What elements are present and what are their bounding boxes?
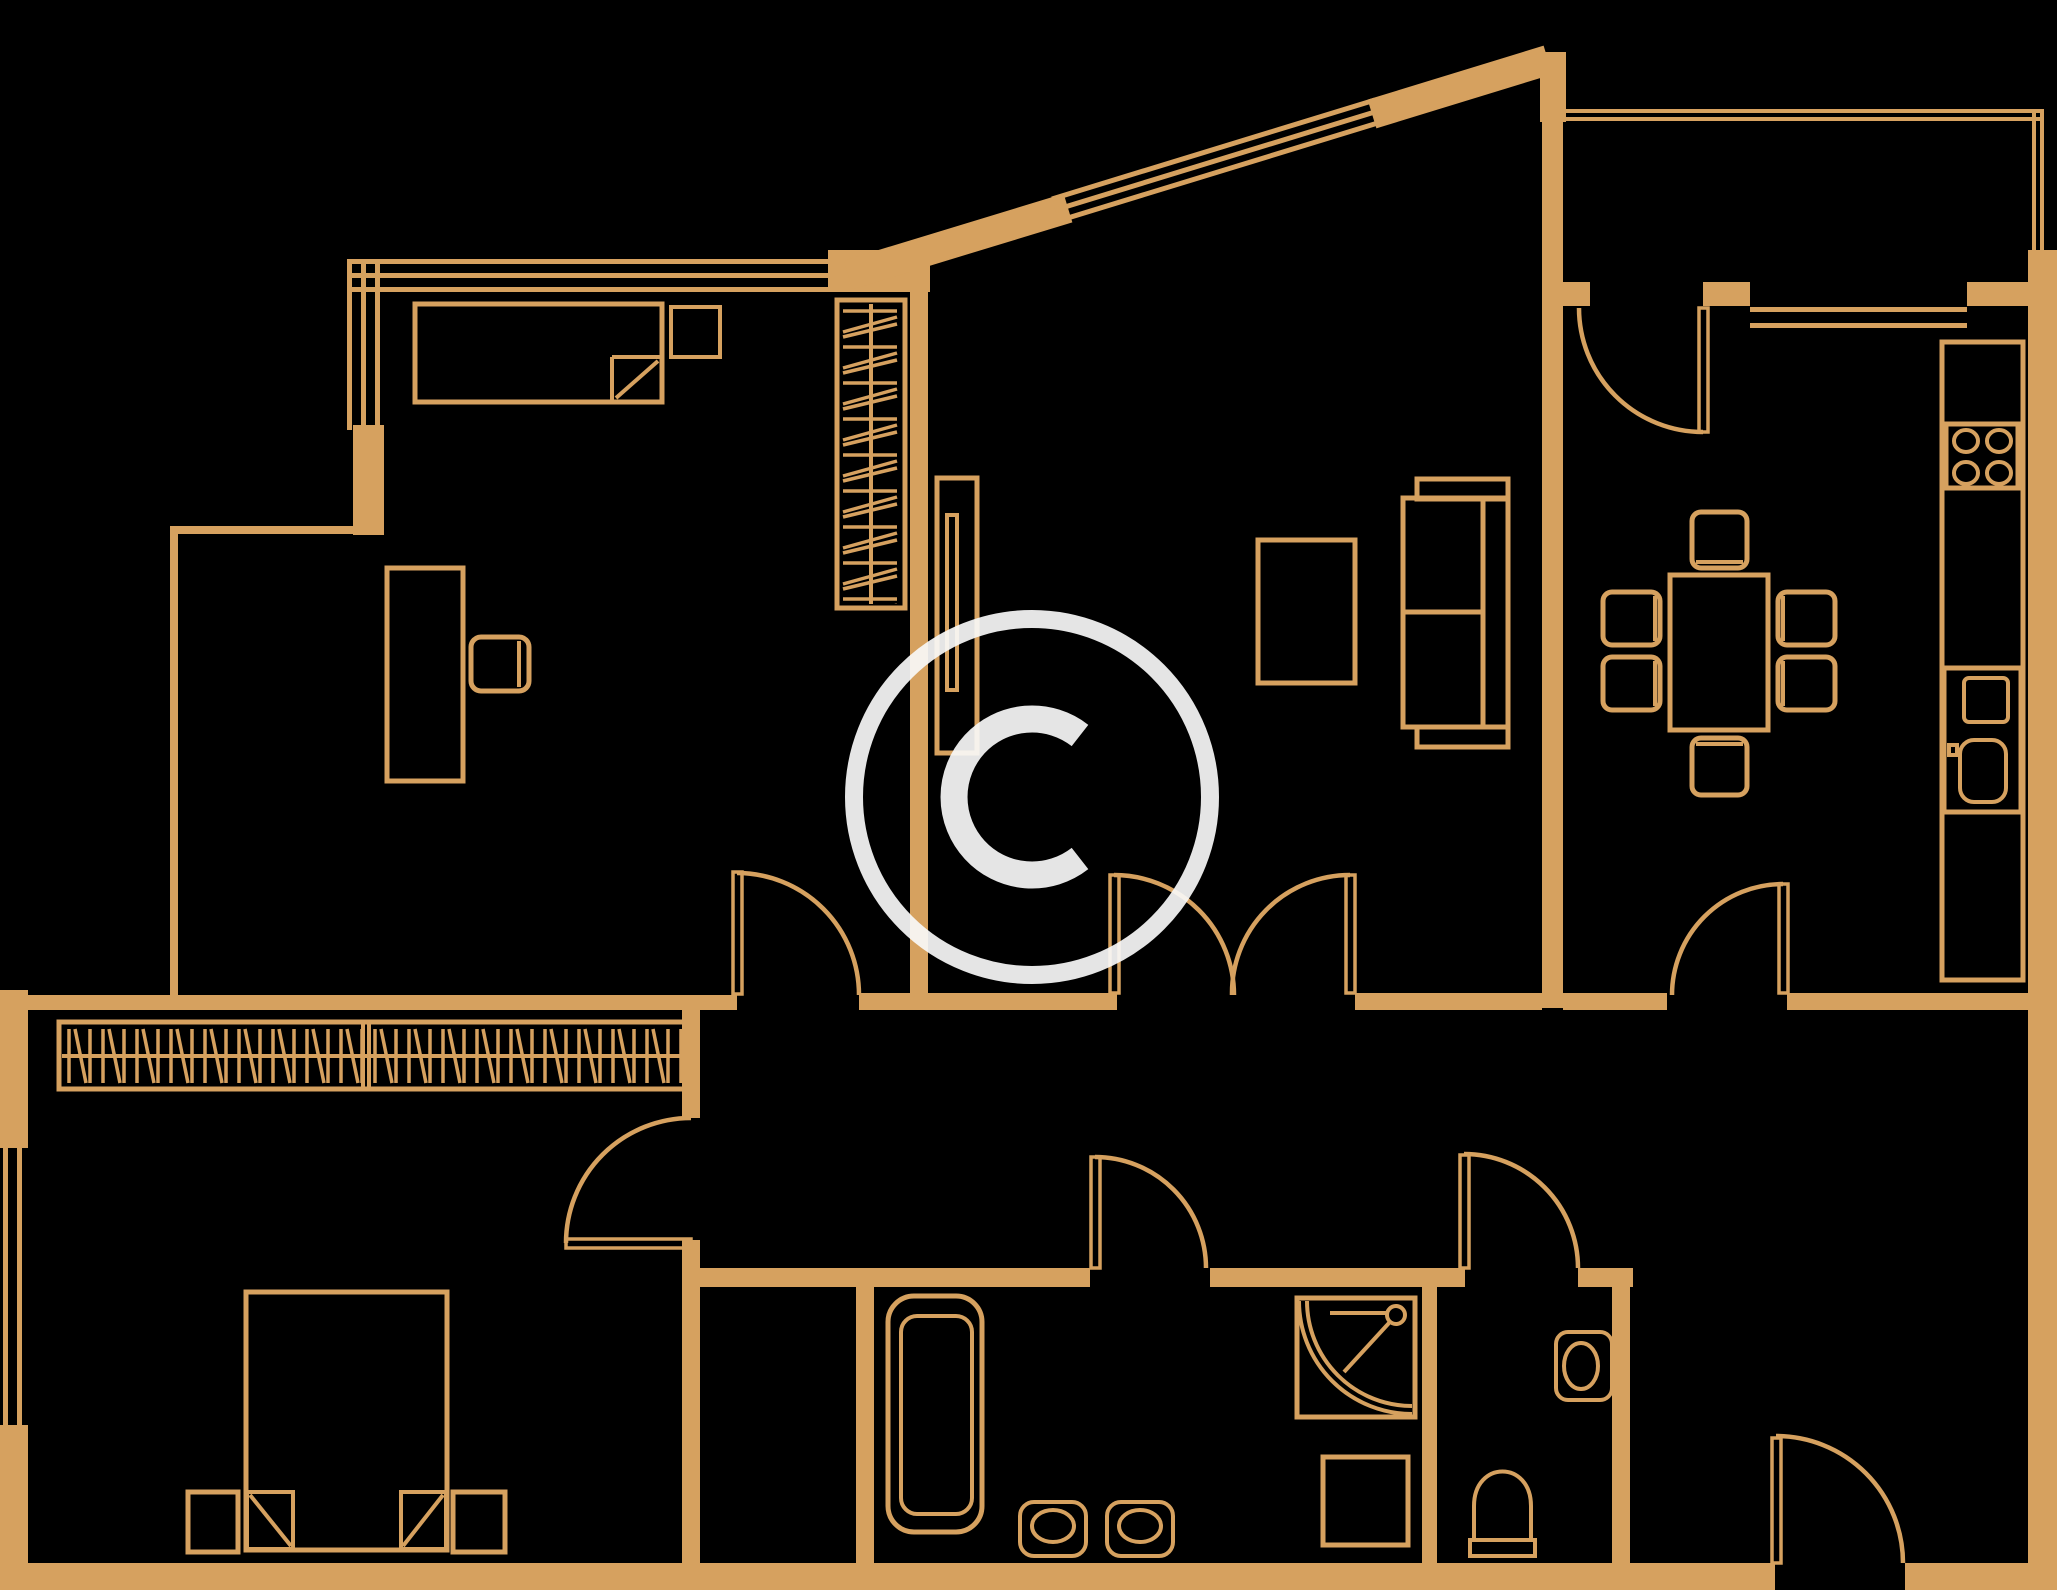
hatched-wardrobe bbox=[837, 300, 905, 608]
door-swing-arc bbox=[1095, 1157, 1206, 1268]
walls bbox=[0, 52, 2057, 1590]
kitchen-window bbox=[1750, 307, 1967, 328]
bathroom-door bbox=[1091, 1157, 1206, 1268]
door-leaf bbox=[1346, 875, 1355, 993]
bathroom-furniture bbox=[888, 1296, 1415, 1556]
diagonal-facade-window bbox=[1052, 100, 1381, 221]
door-swing-arc bbox=[1579, 308, 1703, 432]
chair-left-2 bbox=[1603, 657, 1660, 710]
sliding-panel bbox=[937, 478, 977, 753]
hallway-top-wall bbox=[22, 993, 2028, 1010]
wall-shower-wc-divider bbox=[1422, 1268, 1437, 1563]
diagonal-facade-wall bbox=[848, 52, 1566, 275]
washbasin-2 bbox=[1107, 1502, 1173, 1556]
bedroom-2-door bbox=[566, 1118, 691, 1248]
wall-washbasin bbox=[1556, 1332, 1612, 1400]
chair-top bbox=[1692, 512, 1747, 568]
entrance-door bbox=[1772, 1436, 1903, 1563]
tv-sideboard bbox=[1258, 540, 1355, 683]
pillow bbox=[671, 307, 720, 357]
door-swing-arc bbox=[1464, 1154, 1578, 1268]
bathroom-wc-top-wall bbox=[682, 1268, 1633, 1287]
chair-bottom bbox=[1692, 738, 1747, 795]
bedroom-2-window bbox=[3, 1148, 22, 1425]
door-leaf bbox=[733, 872, 742, 994]
bedroom-1-left-window bbox=[347, 259, 384, 535]
double-bed bbox=[246, 1292, 447, 1550]
floor-plan-canvas bbox=[0, 0, 2057, 1590]
living-room-furniture bbox=[1258, 479, 1508, 747]
doors bbox=[566, 308, 1903, 1563]
door-swing-arc bbox=[566, 1118, 691, 1243]
shower-head bbox=[1387, 1306, 1405, 1324]
door-leaf bbox=[1460, 1155, 1469, 1268]
shower-arm bbox=[1344, 1323, 1389, 1372]
wall-niche-left bbox=[170, 526, 178, 996]
wall-center bbox=[910, 265, 928, 1010]
bedroom-2-furniture bbox=[59, 1022, 685, 1552]
dining-table bbox=[1670, 575, 1768, 730]
sofa bbox=[1403, 479, 1508, 747]
wall-left-upper bbox=[353, 425, 384, 535]
door-swing-arc bbox=[1672, 884, 1783, 995]
washing-machine bbox=[1323, 1457, 1408, 1545]
single-bed bbox=[415, 304, 720, 402]
sink-basin bbox=[1960, 740, 2006, 802]
washbasin-1 bbox=[1020, 1502, 1086, 1556]
bathroom-left-wall bbox=[856, 1268, 874, 1563]
wc-right-wall bbox=[1612, 1268, 1630, 1563]
kitchen-hall-door bbox=[1672, 884, 1788, 995]
kitchen-sink-cabinet bbox=[1944, 668, 2021, 812]
faucet bbox=[1949, 745, 1957, 755]
wall-outer-bottom-right bbox=[1905, 1563, 2057, 1590]
loggia-glazing bbox=[1560, 109, 2044, 256]
wall-outer-left bbox=[0, 990, 28, 1590]
bathtub bbox=[888, 1296, 982, 1532]
door-leaf bbox=[1091, 1157, 1100, 1268]
wc-door bbox=[1460, 1154, 1578, 1268]
bedroom-1-top-window bbox=[347, 259, 848, 292]
pillow-right bbox=[401, 1492, 446, 1549]
pillow-left bbox=[247, 1492, 293, 1549]
desk bbox=[387, 568, 463, 781]
copyright-watermark bbox=[854, 619, 1210, 975]
wall-kitchen-divider bbox=[1542, 64, 1563, 1008]
sofa-armrest-bottom bbox=[1417, 727, 1508, 747]
chair-right-2 bbox=[1778, 657, 1835, 710]
floor-plan bbox=[0, 0, 2057, 1590]
door-swing-arc bbox=[1776, 1436, 1903, 1563]
kitchen-top-wall bbox=[1548, 282, 2028, 328]
door-leaf bbox=[1699, 308, 1708, 432]
door-leaf bbox=[1110, 875, 1119, 993]
door-swing-arc bbox=[1232, 875, 1350, 995]
kitchen-furniture bbox=[1603, 342, 2023, 980]
bedroom-1-furniture bbox=[387, 300, 977, 781]
dining-table-set bbox=[1603, 512, 1835, 795]
kitchen-loggia-door bbox=[1579, 308, 1708, 432]
blanket-fold bbox=[612, 357, 662, 402]
chair-right-1 bbox=[1778, 592, 1835, 645]
corner-shower bbox=[1297, 1298, 1415, 1417]
door-swing-arc bbox=[737, 873, 859, 995]
desk-chair bbox=[471, 637, 529, 691]
wc-furniture bbox=[1470, 1332, 1612, 1556]
nightstand-right bbox=[453, 1492, 505, 1552]
wall-niche-step bbox=[170, 526, 360, 534]
hatched-closet-row bbox=[59, 1022, 685, 1089]
copyright-c bbox=[954, 719, 1080, 875]
door-leaf bbox=[1772, 1438, 1781, 1563]
chair-left-1 bbox=[1603, 592, 1660, 645]
bedroom-1-door bbox=[733, 872, 859, 995]
stove-4-burners bbox=[1946, 424, 2018, 488]
toilet bbox=[1470, 1472, 1535, 1557]
wall-outer-right bbox=[2028, 250, 2057, 1590]
door-leaf bbox=[566, 1239, 691, 1248]
nightstand-left bbox=[188, 1492, 238, 1552]
wall-outer-bottom-left bbox=[0, 1563, 1775, 1590]
copyright-ring bbox=[854, 619, 1210, 975]
door-leaf bbox=[1779, 884, 1788, 993]
